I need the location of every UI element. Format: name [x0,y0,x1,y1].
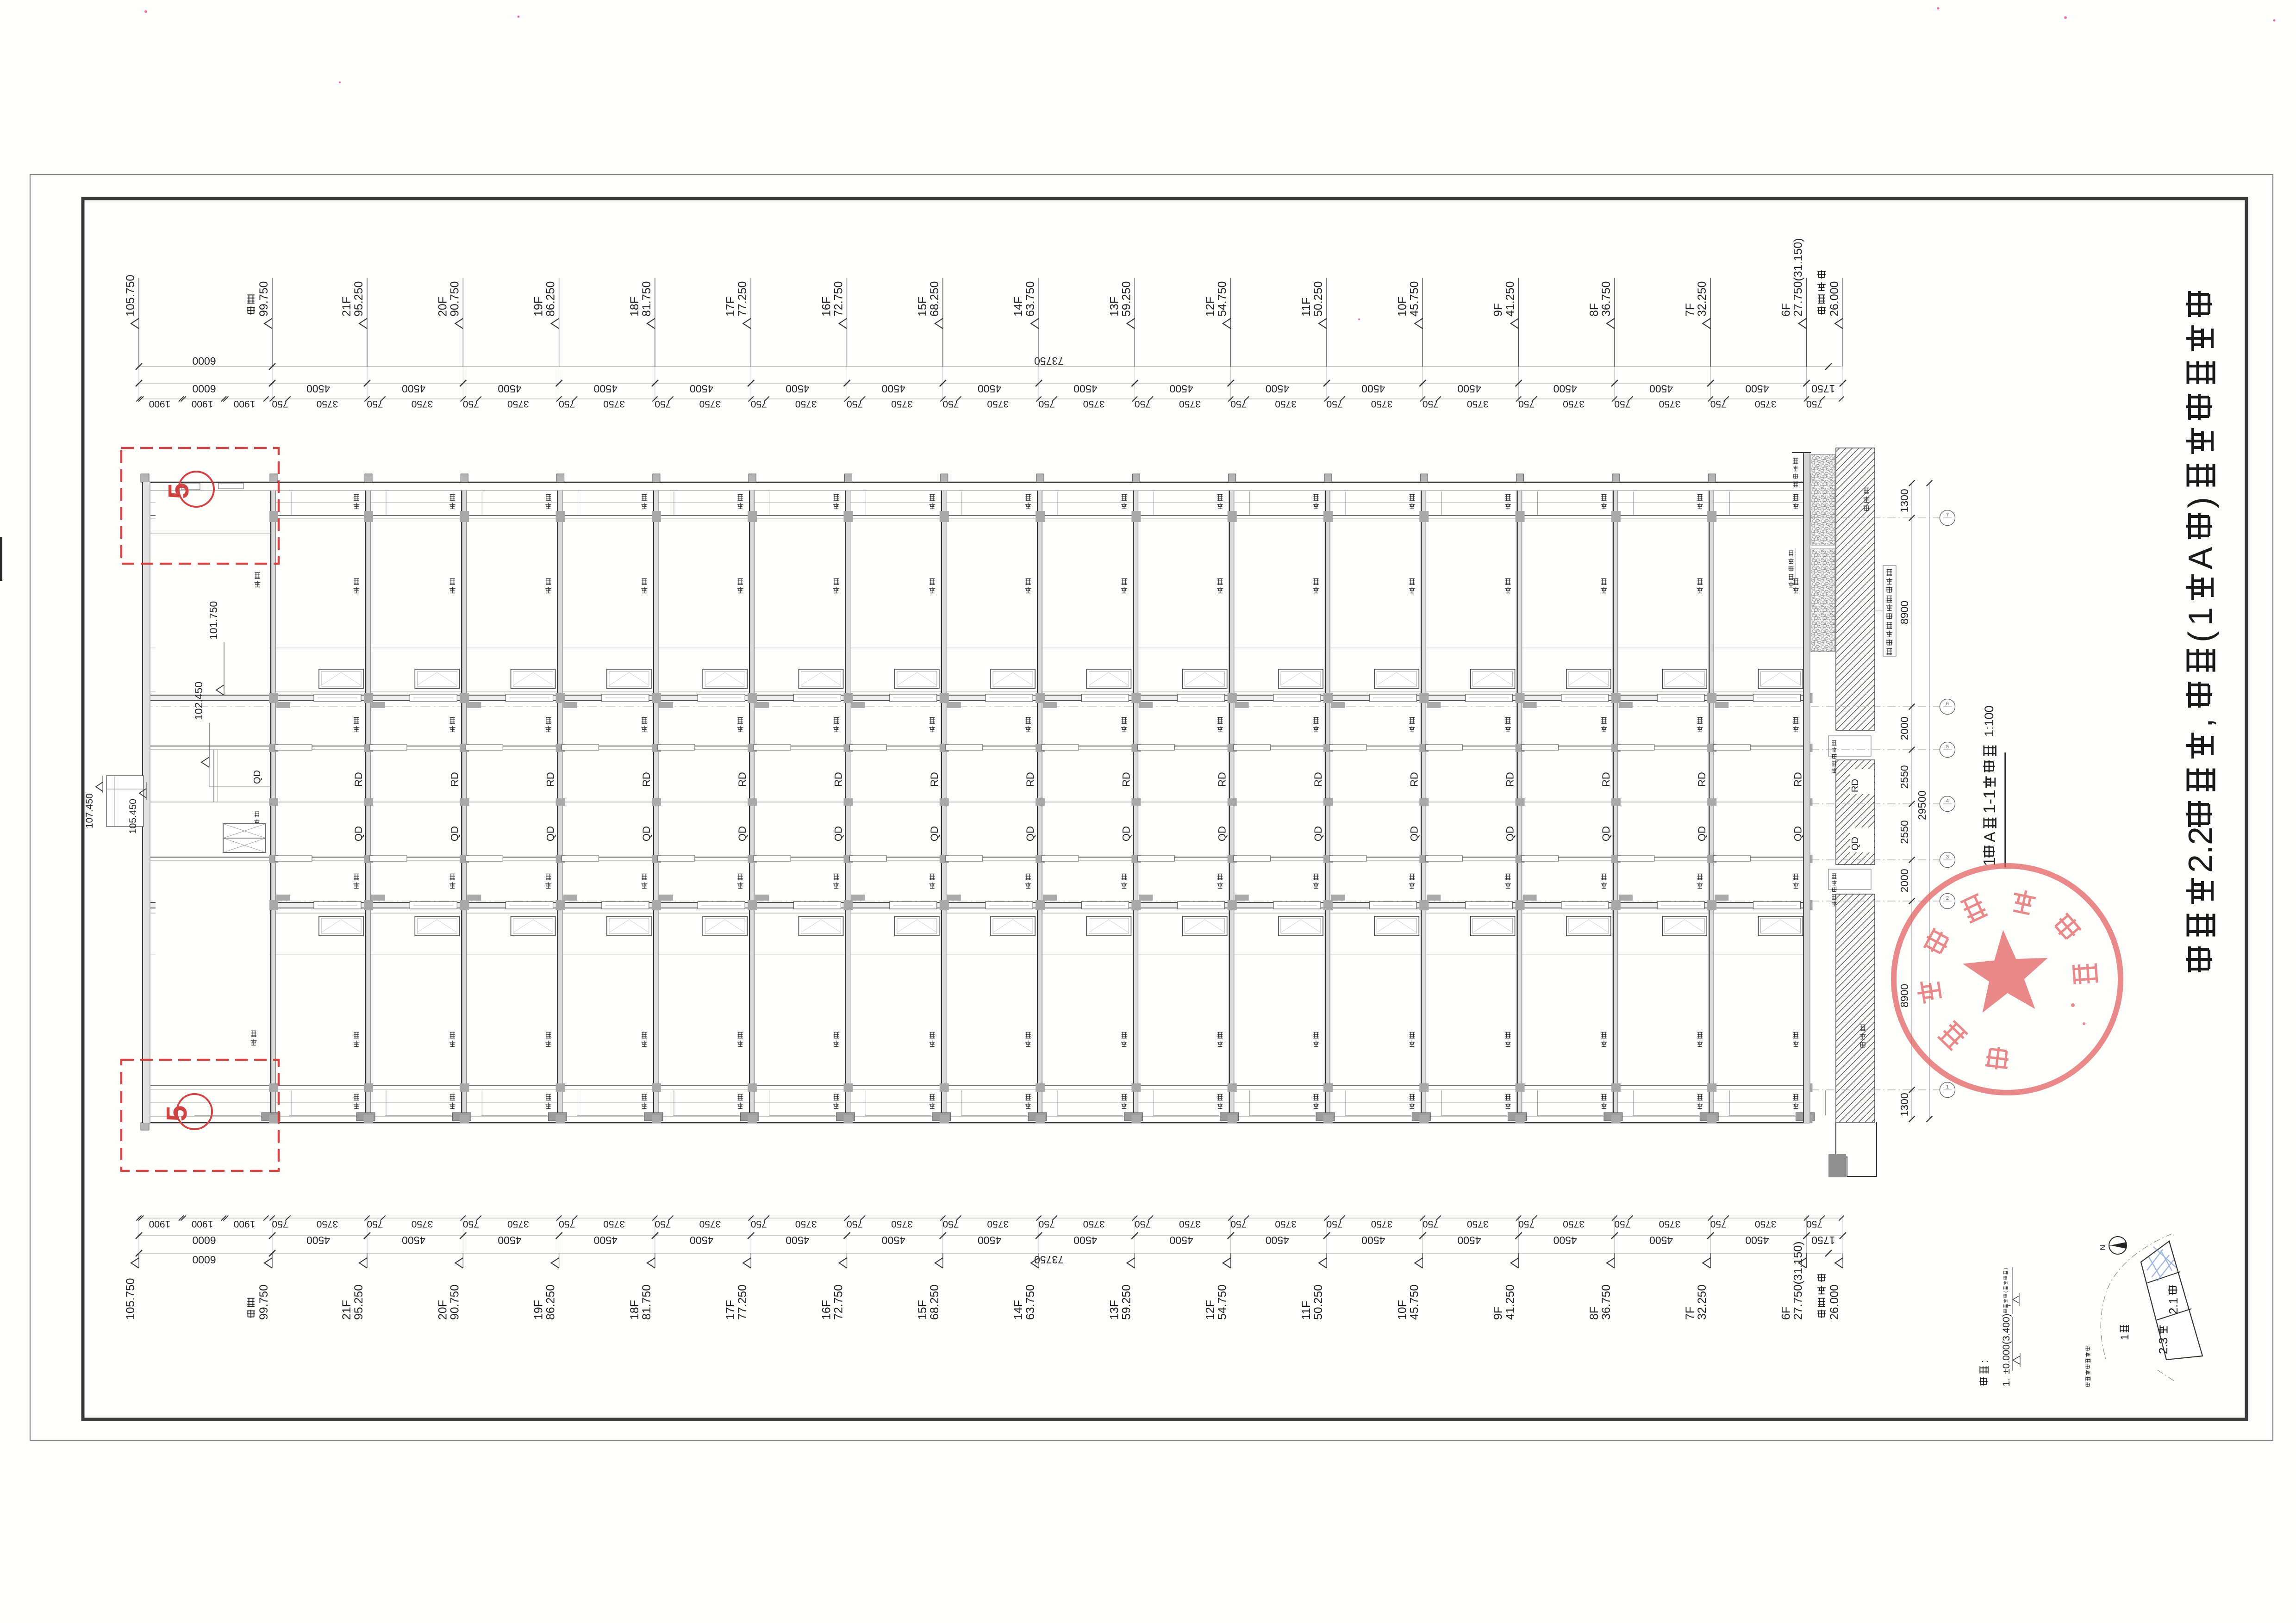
svg-text:12F: 12F [1204,297,1217,317]
svg-text:750: 750 [655,1219,671,1229]
svg-text:RD: RD [1600,772,1612,787]
svg-text:QD: QD [1120,826,1132,841]
svg-text:750: 750 [367,398,383,409]
svg-text:3750: 3750 [1563,1219,1585,1229]
svg-text:19F: 19F [532,297,545,317]
svg-text:17F: 17F [724,1300,737,1320]
svg-text:26.000: 26.000 [1828,1285,1841,1320]
svg-text:3750: 3750 [1659,398,1681,409]
svg-text:86.250: 86.250 [544,1285,557,1320]
svg-text:3750: 3750 [795,1219,817,1229]
svg-text:QD: QD [641,826,652,841]
svg-text:4500: 4500 [978,1234,1001,1246]
svg-text:4: 4 [1946,798,1949,804]
svg-text:750: 750 [1326,1219,1342,1229]
svg-text:N: N [2098,1245,2107,1250]
svg-text:10F: 10F [1396,1300,1409,1320]
svg-text:1900: 1900 [149,1219,171,1229]
svg-text:6000: 6000 [192,1254,216,1266]
svg-text:8900: 8900 [1898,984,1910,1007]
svg-text:72.750: 72.750 [832,1285,845,1320]
svg-text:27.750(31.150): 27.750(31.150) [1792,238,1805,317]
svg-text:20F: 20F [436,1300,449,1320]
svg-text:RD: RD [1024,772,1036,787]
svg-text:750: 750 [1710,1219,1727,1229]
svg-text:13F: 13F [1108,297,1121,317]
svg-text:750: 750 [942,1219,959,1229]
svg-text:2000: 2000 [1898,869,1910,892]
svg-text:QD: QD [1850,837,1860,851]
svg-text:9F: 9F [1492,1306,1505,1320]
svg-text:36.750: 36.750 [1600,281,1613,317]
svg-text:750: 750 [847,398,863,409]
svg-text:107.450: 107.450 [84,793,95,828]
svg-text:6000: 6000 [192,355,216,367]
svg-text:RD: RD [736,772,748,787]
svg-text:27.750(31.150): 27.750(31.150) [1792,1241,1805,1320]
svg-text:4500: 4500 [882,1234,905,1246]
svg-text:1900: 1900 [192,398,213,409]
svg-text:81.750: 81.750 [640,1285,653,1320]
svg-text:750: 750 [655,398,671,409]
svg-text:4500: 4500 [1073,383,1097,395]
svg-text:750: 750 [559,398,575,409]
svg-text:3750: 3750 [891,1219,913,1229]
svg-text:54.750: 54.750 [1216,1285,1229,1320]
svg-text:4500: 4500 [1554,383,1577,395]
svg-text:RD: RD [929,772,940,787]
svg-text:15F: 15F [916,297,929,317]
svg-text:QD: QD [449,826,460,841]
svg-text:RD: RD [641,772,652,787]
svg-text:1750: 1750 [1811,1234,1835,1246]
svg-text:QD: QD [353,826,364,841]
svg-text:QD: QD [252,770,262,784]
svg-text:4500: 4500 [1170,383,1193,395]
svg-text:4500: 4500 [1361,383,1385,395]
svg-text:RD: RD [1504,772,1516,787]
svg-text:7F: 7F [1684,1306,1697,1320]
svg-text:20F: 20F [436,297,449,317]
svg-text:±0.000(3.400): ±0.000(3.400) [2001,1313,2012,1374]
svg-text:50.250: 50.250 [1312,281,1325,317]
svg-text:RD: RD [545,772,556,787]
svg-text:3750: 3750 [1659,1219,1681,1229]
svg-text:,: , [2182,718,2219,728]
svg-text:1900: 1900 [149,398,171,409]
svg-text:21F: 21F [340,1300,353,1320]
svg-text:1:100: 1:100 [1982,705,1996,737]
svg-text:750: 750 [1230,1219,1247,1229]
svg-text:750: 750 [1806,398,1822,409]
svg-text:4500: 4500 [1266,1234,1289,1246]
svg-text:105.450: 105.450 [128,799,138,834]
svg-text:750: 750 [367,1219,383,1229]
svg-text:14F: 14F [1012,1300,1025,1320]
svg-text:3750: 3750 [987,1219,1009,1229]
svg-text:6F: 6F [1780,303,1793,317]
svg-text:1300: 1300 [1898,1093,1910,1116]
svg-text:2550: 2550 [1898,765,1910,789]
svg-text:RD: RD [1792,772,1804,787]
svg-text:RD: RD [1696,772,1708,787]
svg-text:18F: 18F [628,1300,641,1320]
svg-text:16F: 16F [820,297,833,317]
svg-text:105.750: 105.750 [124,275,137,317]
svg-text:4500: 4500 [306,383,330,395]
svg-text:3750: 3750 [1179,398,1201,409]
svg-text:8900: 8900 [1898,601,1910,624]
svg-text:13F: 13F [1108,1300,1121,1320]
svg-text:63.750: 63.750 [1024,1285,1037,1320]
svg-text:3750: 3750 [1467,398,1489,409]
svg-text:1750: 1750 [1811,383,1835,395]
svg-text:4500: 4500 [498,383,521,395]
svg-text:RD: RD [1850,779,1860,792]
svg-text:14F: 14F [1012,297,1025,317]
svg-text:4500: 4500 [786,1234,809,1246]
svg-text:RD: RD [1217,772,1228,787]
svg-text:3750: 3750 [1083,1219,1105,1229]
svg-text:3750: 3750 [1467,1219,1489,1229]
svg-text:41.250: 41.250 [1504,1285,1517,1320]
svg-text:4500: 4500 [1457,383,1481,395]
svg-text:12F: 12F [1204,1300,1217,1320]
svg-text:3750: 3750 [603,398,625,409]
svg-text:11F: 11F [1300,298,1313,317]
svg-text:3750: 3750 [1563,398,1585,409]
svg-text:45.750: 45.750 [1408,1285,1421,1320]
svg-text:4500: 4500 [306,1234,330,1246]
svg-text:4500: 4500 [786,383,809,395]
svg-text:): ) [2182,497,2219,508]
svg-text:4500: 4500 [1745,1234,1769,1246]
svg-text:95.250: 95.250 [352,281,365,317]
svg-text:4500: 4500 [498,1234,521,1246]
svg-text:4500: 4500 [690,383,713,395]
svg-text:RD: RD [833,772,844,787]
svg-text:4500: 4500 [882,383,905,395]
svg-text:3750: 3750 [1755,1219,1777,1229]
svg-text:7: 7 [1946,512,1949,518]
svg-text:4500: 4500 [402,1234,425,1246]
svg-text:1: 1 [2182,607,2219,626]
svg-text:QD: QD [545,826,556,841]
svg-text:59.250: 59.250 [1120,1285,1133,1320]
svg-text:750: 750 [1135,1219,1151,1229]
svg-text:): ) [2003,1268,2009,1269]
svg-text:750: 750 [1039,398,1055,409]
svg-text:63.750: 63.750 [1024,281,1037,317]
svg-text:QD: QD [736,826,748,841]
svg-text:750: 750 [751,398,767,409]
svg-text:QD: QD [1792,826,1804,841]
svg-text:90.750: 90.750 [448,281,461,317]
svg-text:21F: 21F [340,297,353,317]
svg-text:1: 1 [2119,1334,2131,1340]
svg-text:(: ( [2182,631,2219,642]
svg-text:2.2: 2.2 [2182,827,2219,873]
svg-text:9F: 9F [1492,303,1505,317]
svg-text:4500: 4500 [1170,1234,1193,1246]
svg-text:2000: 2000 [1898,716,1910,740]
svg-text:750: 750 [1710,398,1727,409]
svg-text:4500: 4500 [1649,1234,1673,1246]
svg-text:6000: 6000 [192,1234,216,1246]
svg-text:750: 750 [559,1219,575,1229]
svg-text:19F: 19F [532,1300,545,1320]
svg-text:77.250: 77.250 [736,281,749,317]
svg-text:68.250: 68.250 [928,281,941,317]
svg-text:15F: 15F [916,1300,929,1320]
svg-text:4500: 4500 [1361,1234,1385,1246]
svg-text:18F: 18F [628,297,641,317]
svg-text:36.750: 36.750 [1600,1285,1613,1320]
svg-text:4500: 4500 [690,1234,713,1246]
svg-text:RD: RD [1120,772,1132,787]
svg-text:45.750: 45.750 [1408,281,1421,317]
svg-text:QD: QD [1024,826,1036,841]
svg-text:3750: 3750 [987,398,1009,409]
svg-text:QD: QD [1504,826,1516,841]
svg-text:RD: RD [1312,772,1324,787]
svg-text:1.: 1. [2001,1378,2012,1387]
svg-text:32.250: 32.250 [1696,281,1709,317]
svg-text:1900: 1900 [234,398,256,409]
svg-text:3750: 3750 [507,1219,529,1229]
svg-text:8F: 8F [1588,1306,1601,1320]
svg-text:26.000: 26.000 [1828,281,1841,317]
svg-text:3750: 3750 [507,398,529,409]
svg-text:77.250: 77.250 [736,1285,749,1320]
svg-text:3750: 3750 [412,1219,433,1229]
svg-text:5: 5 [1946,744,1949,750]
svg-text:A: A [1981,832,1999,842]
svg-text:5: 5 [161,1106,193,1121]
svg-text:QD: QD [1696,826,1708,841]
svg-text:10F: 10F [1396,297,1409,317]
svg-text:750: 750 [1423,1219,1439,1229]
svg-text:1900: 1900 [192,1219,213,1229]
svg-text:3750: 3750 [603,1219,625,1229]
svg-text:4500: 4500 [1073,1234,1097,1246]
svg-text:59.250: 59.250 [1120,281,1133,317]
svg-text:1900: 1900 [234,1219,256,1229]
svg-text:4500: 4500 [1745,383,1769,395]
svg-text:750: 750 [463,398,479,409]
svg-text:1-1: 1-1 [1980,790,1999,814]
svg-text:750: 750 [1423,398,1439,409]
svg-text:RD: RD [353,772,364,787]
svg-text:750: 750 [1326,398,1342,409]
svg-text:3750: 3750 [317,398,338,409]
svg-text:3750: 3750 [1275,1219,1297,1229]
svg-text:3750: 3750 [795,398,817,409]
svg-text:17F: 17F [724,297,737,317]
svg-text:750: 750 [1039,1219,1055,1229]
svg-text:QD: QD [929,826,940,841]
svg-text:105.750: 105.750 [124,1278,137,1320]
svg-text:50.250: 50.250 [1312,1285,1325,1320]
svg-text:95.250: 95.250 [352,1285,365,1320]
svg-text:101.750: 101.750 [207,601,219,640]
svg-text:750: 750 [1135,398,1151,409]
svg-text:90.750: 90.750 [448,1285,461,1320]
svg-text:102.450: 102.450 [193,682,205,720]
svg-text:3750: 3750 [317,1219,338,1229]
svg-text:750: 750 [1806,1219,1822,1229]
svg-text::: : [1978,1360,1990,1363]
svg-text:5: 5 [163,483,195,499]
svg-text:4500: 4500 [978,383,1001,395]
svg-text:2: 2 [1946,895,1949,901]
svg-text:11F: 11F [1300,1301,1313,1320]
svg-text:750: 750 [272,1219,288,1229]
svg-text:6: 6 [1946,701,1949,707]
svg-text:72.750: 72.750 [832,281,845,317]
svg-text:750: 750 [1230,398,1247,409]
svg-text:RD: RD [449,772,460,787]
svg-text:29500: 29500 [1916,790,1928,820]
svg-text:81.750: 81.750 [640,281,653,317]
svg-text:750: 750 [463,1219,479,1229]
svg-text:QD: QD [1408,826,1420,841]
svg-text:41.250: 41.250 [1504,281,1517,317]
svg-text:4500: 4500 [1266,383,1289,395]
svg-text:750: 750 [1518,398,1535,409]
svg-text:99.750: 99.750 [257,281,270,317]
svg-text:4500: 4500 [1649,383,1673,395]
svg-text:6F: 6F [1780,1306,1793,1320]
svg-text:4500: 4500 [594,383,618,395]
svg-text:750: 750 [1518,1219,1535,1229]
svg-text:99.750: 99.750 [257,1285,270,1320]
svg-text:2.3: 2.3 [2156,1337,2170,1354]
svg-text:3: 3 [1946,854,1949,860]
svg-text:QD: QD [1312,826,1324,841]
svg-text:3750: 3750 [1371,398,1393,409]
svg-text:750: 750 [751,1219,767,1229]
svg-text:4500: 4500 [1457,1234,1481,1246]
svg-text:7F: 7F [1684,303,1697,317]
svg-text:3750: 3750 [891,398,913,409]
svg-text:3750: 3750 [1179,1219,1201,1229]
svg-text:86.250: 86.250 [544,281,557,317]
svg-text:3750: 3750 [699,398,721,409]
svg-text:4500: 4500 [594,1234,618,1246]
svg-text:8F: 8F [1588,303,1601,317]
svg-text:750: 750 [272,398,288,409]
svg-text:QD: QD [1600,826,1612,841]
svg-text:4500: 4500 [402,383,425,395]
svg-text:QD: QD [1217,826,1228,841]
svg-text:750: 750 [942,398,959,409]
svg-text:750: 750 [1614,1219,1630,1229]
svg-text:1300: 1300 [1898,489,1910,512]
svg-text:750: 750 [1614,398,1630,409]
svg-text:A: A [2182,547,2219,569]
svg-text:54.750: 54.750 [1216,281,1229,317]
svg-text:750: 750 [847,1219,863,1229]
svg-text:16F: 16F [820,1300,833,1320]
svg-text:3750: 3750 [1083,398,1105,409]
svg-text:3750: 3750 [1755,398,1777,409]
svg-text:6000: 6000 [192,383,216,395]
svg-text:QD: QD [833,826,844,841]
svg-text:2.1: 2.1 [2166,1298,2180,1314]
svg-text:3750: 3750 [1371,1219,1393,1229]
svg-text:68.250: 68.250 [928,1285,941,1320]
svg-text:3750: 3750 [1275,398,1297,409]
svg-text:3750: 3750 [412,398,433,409]
svg-text:1: 1 [1946,1084,1949,1090]
svg-text:2550: 2550 [1898,820,1910,844]
svg-text:32.250: 32.250 [1696,1285,1709,1320]
svg-text:3750: 3750 [699,1219,721,1229]
svg-text:RD: RD [1408,772,1420,787]
svg-text:4500: 4500 [1554,1234,1577,1246]
